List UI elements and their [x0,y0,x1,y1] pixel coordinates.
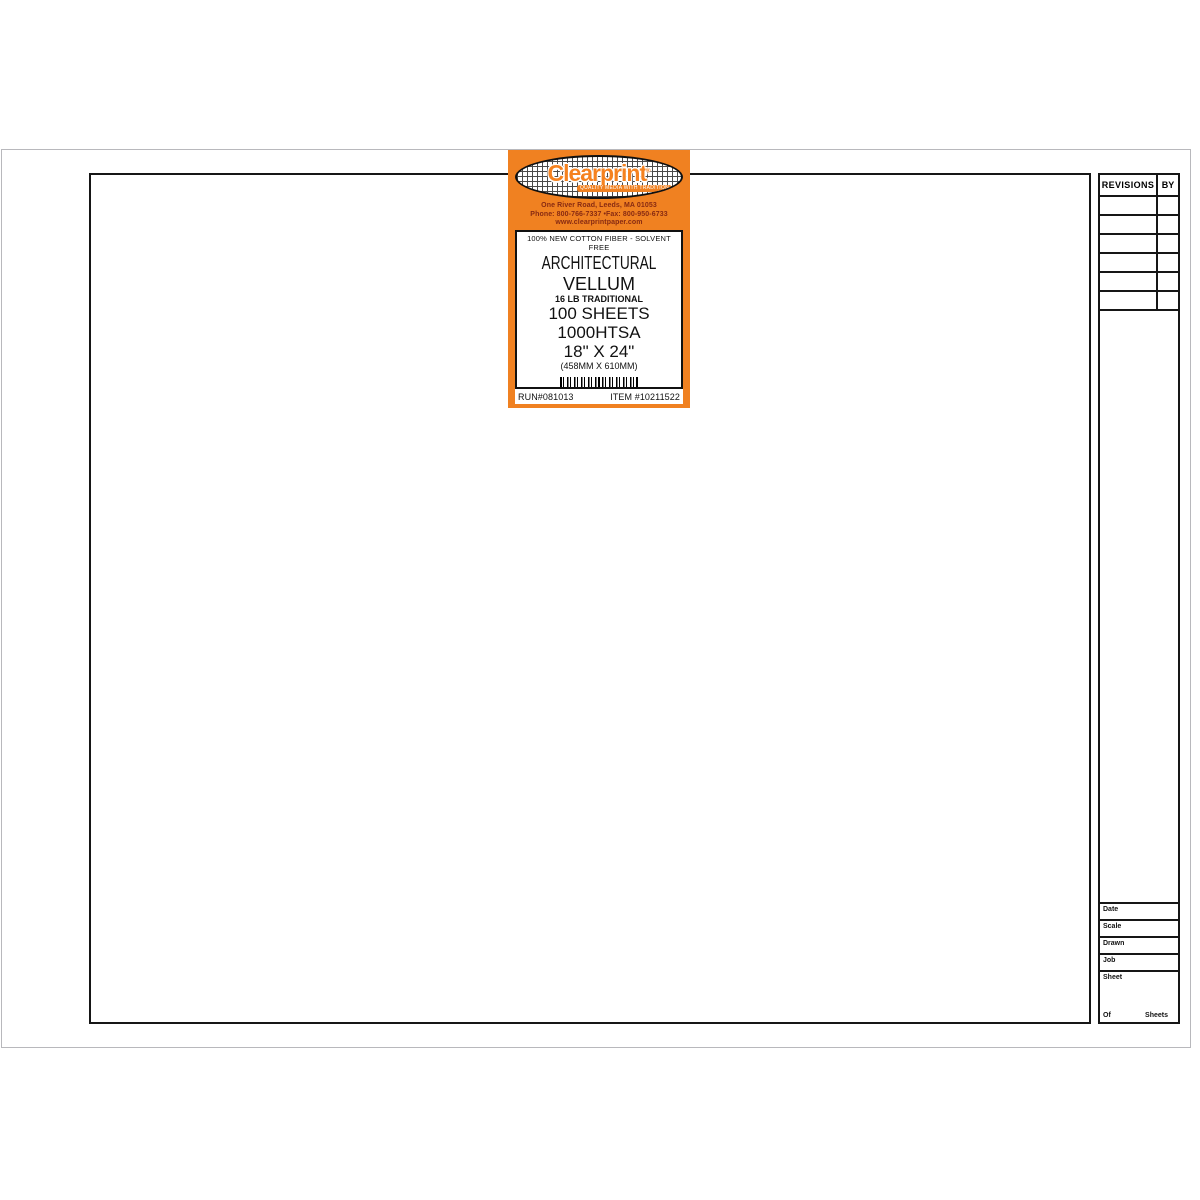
by-cell [1156,273,1178,290]
revision-row [1100,235,1178,254]
barcode-bars: 00000 00000 [560,377,638,390]
revision-cell [1100,216,1156,233]
by-cell [1156,292,1178,309]
barcode-guard-left [560,377,562,390]
sheets-label: Sheets [1145,1012,1168,1019]
field-label: Job [1103,957,1115,964]
revision-rows [1100,197,1178,311]
address-line-1: One River Road, Leeds, MA 01053 [515,202,683,211]
field-row-job: Job [1100,953,1178,970]
by-cell [1156,254,1178,271]
revision-cell [1100,197,1156,214]
product-info-panel: 100% NEW COTTON FIBER - SOLVENT FREE ARC… [515,230,683,390]
size-metric: (458MM X 610MM) [517,361,681,372]
registered-mark: ® [646,168,650,174]
field-row-date: Date [1100,902,1178,919]
field-label: Scale [1103,923,1121,930]
company-address: One River Road, Leeds, MA 01053 Phone: 8… [515,202,683,228]
field-label: Drawn [1103,940,1124,947]
by-cell [1156,235,1178,252]
run-number: RUN#081013 [518,392,574,402]
by-cell [1156,197,1178,214]
revision-cell [1100,273,1156,290]
field-row-drawn: Drawn [1100,936,1178,953]
address-line-2: Phone: 800-766-7337 •Fax: 800-950-6733 [515,211,683,220]
brand-text: Clearprint [547,160,646,186]
by-cell [1156,216,1178,233]
barcode-guard-middle [598,377,600,390]
clearprint-logo: Clearprint® QUALITY MEDIA WITH TRADITION [515,155,683,199]
revision-row [1100,197,1178,216]
revision-cell [1100,254,1156,271]
barcode: 0 00000 00000 6 [549,377,649,390]
sheet-count: 100 SHEETS [517,304,681,323]
weight-line: 16 LB TRADITIONAL [517,294,681,304]
barcode-guard-right [636,377,638,390]
revisions-header-row: REVISIONS BY [1100,175,1178,197]
product-photo: REVISIONS BY DateScaleDrawnJob Sheet Of … [0,0,1200,1200]
revision-cell [1100,235,1156,252]
item-number: ITEM #10211522 [610,392,680,402]
revision-row [1100,254,1178,273]
sheet-box: Sheet Of Sheets [1100,970,1178,1022]
product-name-line-2: VELLUM [517,274,681,294]
notes-area [1100,311,1178,902]
field-row-scale: Scale [1100,919,1178,936]
revision-row [1100,292,1178,311]
field-label: Date [1103,906,1118,913]
product-name-line-1: ARCHITECTURAL [537,252,662,274]
size-line: 18" X 24" [517,342,681,361]
of-label: Of [1103,1012,1111,1019]
brand-name: Clearprint® [517,160,681,187]
title-block: REVISIONS BY DateScaleDrawnJob Sheet Of … [1098,173,1180,1024]
brand-tagline: QUALITY MEDIA WITH TRADITION [577,185,672,192]
field-rows: DateScaleDrawnJob [1100,902,1178,970]
revisions-header: REVISIONS [1100,175,1156,195]
revision-cell [1100,292,1156,309]
run-item-row: RUN#081013 ITEM #10211522 [515,389,683,404]
revision-row [1100,273,1178,292]
revision-row [1100,216,1178,235]
sheet-label: Sheet [1103,974,1122,981]
fiber-line: 100% NEW COTTON FIBER - SOLVENT FREE [517,234,681,252]
by-header: BY [1156,175,1178,195]
product-code: 1000HTSA [517,323,681,342]
address-line-3: www.clearprintpaper.com [515,219,683,228]
product-label: Clearprint® QUALITY MEDIA WITH TRADITION… [508,150,690,408]
